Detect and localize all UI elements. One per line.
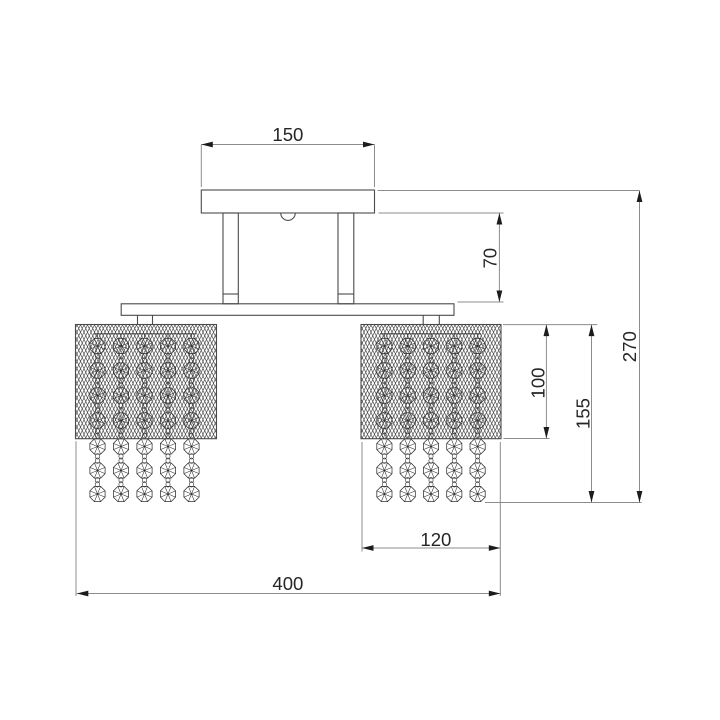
svg-text:120: 120: [420, 529, 451, 550]
svg-text:150: 150: [272, 124, 303, 145]
svg-text:270: 270: [619, 331, 640, 362]
svg-text:155: 155: [573, 398, 594, 429]
svg-text:100: 100: [528, 367, 549, 398]
svg-text:400: 400: [272, 573, 303, 594]
svg-text:70: 70: [480, 248, 501, 269]
